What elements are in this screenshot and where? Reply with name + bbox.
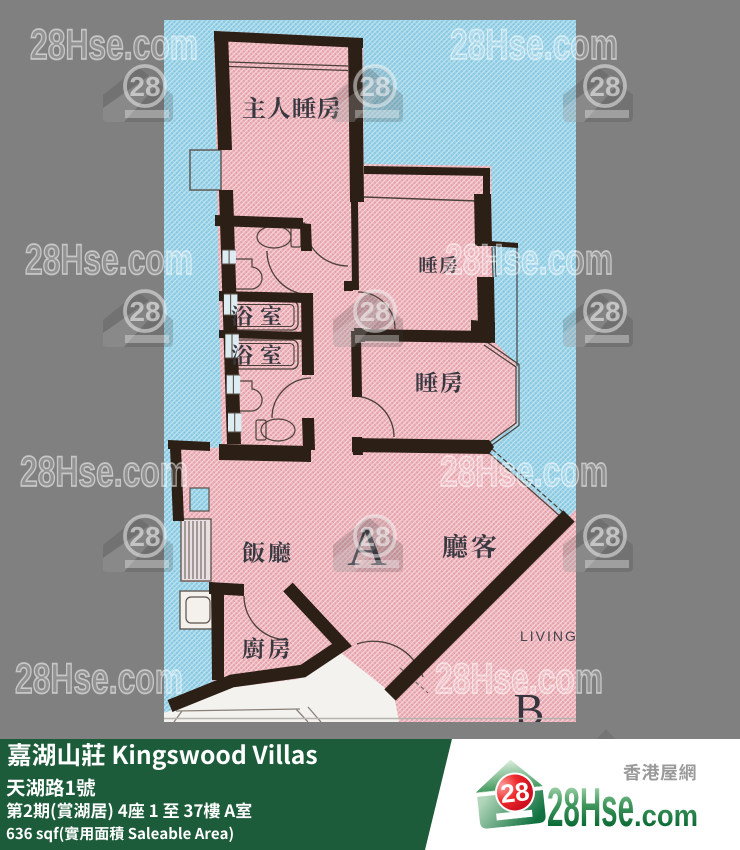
svg-text:28Hse.com: 28Hse.com — [440, 448, 608, 496]
svg-text:28Hse.com: 28Hse.com — [20, 448, 188, 496]
svg-text:28Hse.com: 28Hse.com — [25, 236, 193, 284]
svg-text:.com: .com — [634, 798, 698, 833]
svg-text:28: 28 — [499, 776, 531, 809]
svg-text:28Hse.com: 28Hse.com — [30, 21, 198, 69]
svg-text:28Hse.com: 28Hse.com — [450, 21, 618, 69]
svg-text:28Hse: 28Hse — [547, 776, 634, 838]
svg-text:28Hse.com: 28Hse.com — [15, 655, 183, 703]
svg-text:28Hse.com: 28Hse.com — [445, 236, 613, 284]
svg-text:28Hse.com: 28Hse.com — [435, 655, 603, 703]
